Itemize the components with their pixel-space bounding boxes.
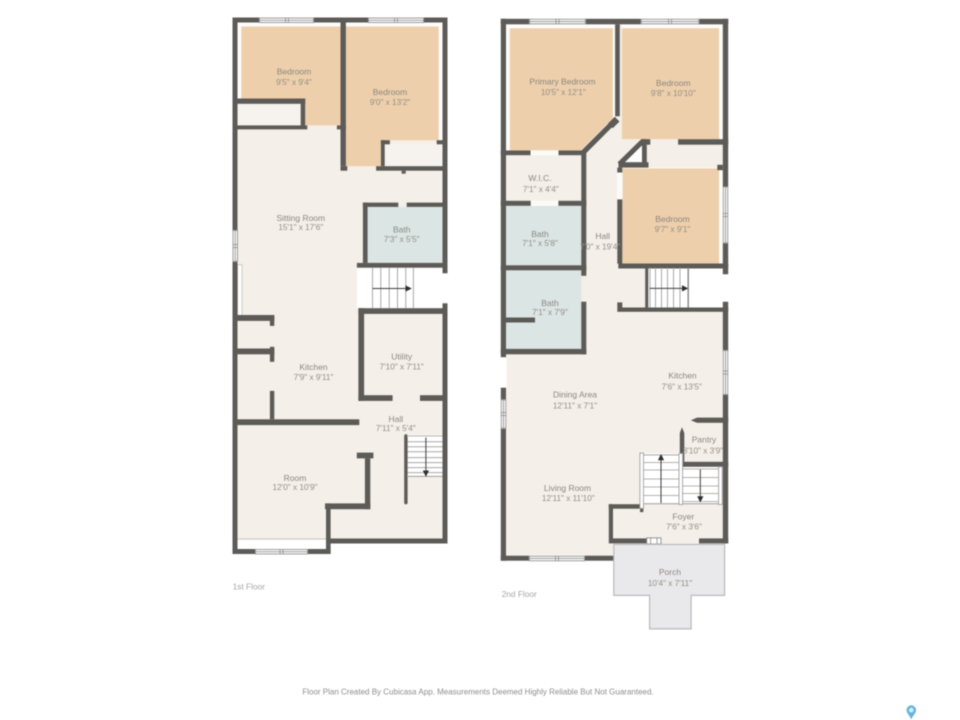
svg-text:Bedroom: Bedroom	[655, 214, 690, 224]
svg-text:Foyer: Foyer	[672, 511, 694, 521]
svg-text:7'11" x 5'4": 7'11" x 5'4"	[376, 424, 416, 433]
svg-text:Bath: Bath	[541, 298, 559, 308]
svg-text:12'0" x 10'9": 12'0" x 10'9"	[273, 483, 318, 492]
svg-text:9'7" x 9'1": 9'7" x 9'1"	[655, 225, 691, 234]
svg-text:Room: Room	[284, 473, 307, 483]
svg-text:2nd Floor: 2nd Floor	[502, 589, 537, 599]
svg-text:7'10" x 7'11": 7'10" x 7'11"	[380, 362, 424, 371]
svg-text:Bedroom: Bedroom	[373, 87, 408, 97]
svg-text:15'1" x 17'6": 15'1" x 17'6"	[278, 223, 323, 232]
svg-text:Hall: Hall	[595, 231, 610, 241]
svg-text:Porch: Porch	[659, 567, 681, 577]
svg-text:3'10" x 3'9": 3'10" x 3'9"	[683, 447, 723, 456]
svg-text:Bedroom: Bedroom	[656, 78, 691, 88]
svg-text:Primary Bedroom: Primary Bedroom	[529, 76, 595, 86]
svg-text:9'0" x 13'2": 9'0" x 13'2"	[370, 98, 410, 107]
svg-text:12'11" x 7'1": 12'11" x 7'1"	[553, 402, 597, 411]
svg-text:7'9" x 9'11": 7'9" x 9'11"	[294, 373, 334, 382]
svg-text:Bath: Bath	[531, 229, 549, 239]
svg-text:Floor Plan Created By Cubicasa: Floor Plan Created By Cubicasa App. Meas…	[302, 688, 653, 697]
svg-text:10'4" x 7'11": 10'4" x 7'11"	[648, 579, 692, 588]
svg-text:Utility: Utility	[391, 351, 413, 361]
svg-text:7'1" x 4'4": 7'1" x 4'4"	[523, 185, 559, 194]
svg-text:Living Room: Living Room	[544, 483, 591, 493]
svg-text:7'1" x 5'8": 7'1" x 5'8"	[522, 239, 558, 248]
svg-text:1st Floor: 1st Floor	[233, 581, 266, 591]
svg-text:7'0" x 19'4": 7'0" x 19'4"	[580, 242, 620, 251]
svg-text:10'5" x 12'1": 10'5" x 12'1"	[541, 88, 586, 97]
svg-text:Kitchen: Kitchen	[668, 371, 697, 381]
svg-text:7'3" x 5'5": 7'3" x 5'5"	[384, 235, 420, 244]
svg-text:Hall: Hall	[388, 414, 403, 424]
svg-text:Dining Area: Dining Area	[553, 390, 597, 400]
svg-text:Bath: Bath	[393, 225, 411, 235]
svg-text:Pantry: Pantry	[692, 435, 717, 445]
svg-text:Sitting Room: Sitting Room	[276, 213, 325, 223]
svg-text:Kitchen: Kitchen	[299, 362, 328, 372]
svg-text:9'8" x 10'10": 9'8" x 10'10"	[651, 89, 696, 98]
svg-text:9'5" x 9'4": 9'5" x 9'4"	[276, 78, 312, 87]
svg-text:7'1" x 7'9": 7'1" x 7'9"	[532, 308, 568, 317]
svg-text:7'6" x 3'6": 7'6" x 3'6"	[666, 522, 702, 531]
svg-text:7'6" x 13'5": 7'6" x 13'5"	[662, 382, 702, 391]
svg-text:Bedroom: Bedroom	[277, 67, 312, 77]
svg-text:W.I.C.: W.I.C.	[528, 173, 551, 183]
svg-text:12'11" x 11'10": 12'11" x 11'10"	[542, 494, 595, 503]
